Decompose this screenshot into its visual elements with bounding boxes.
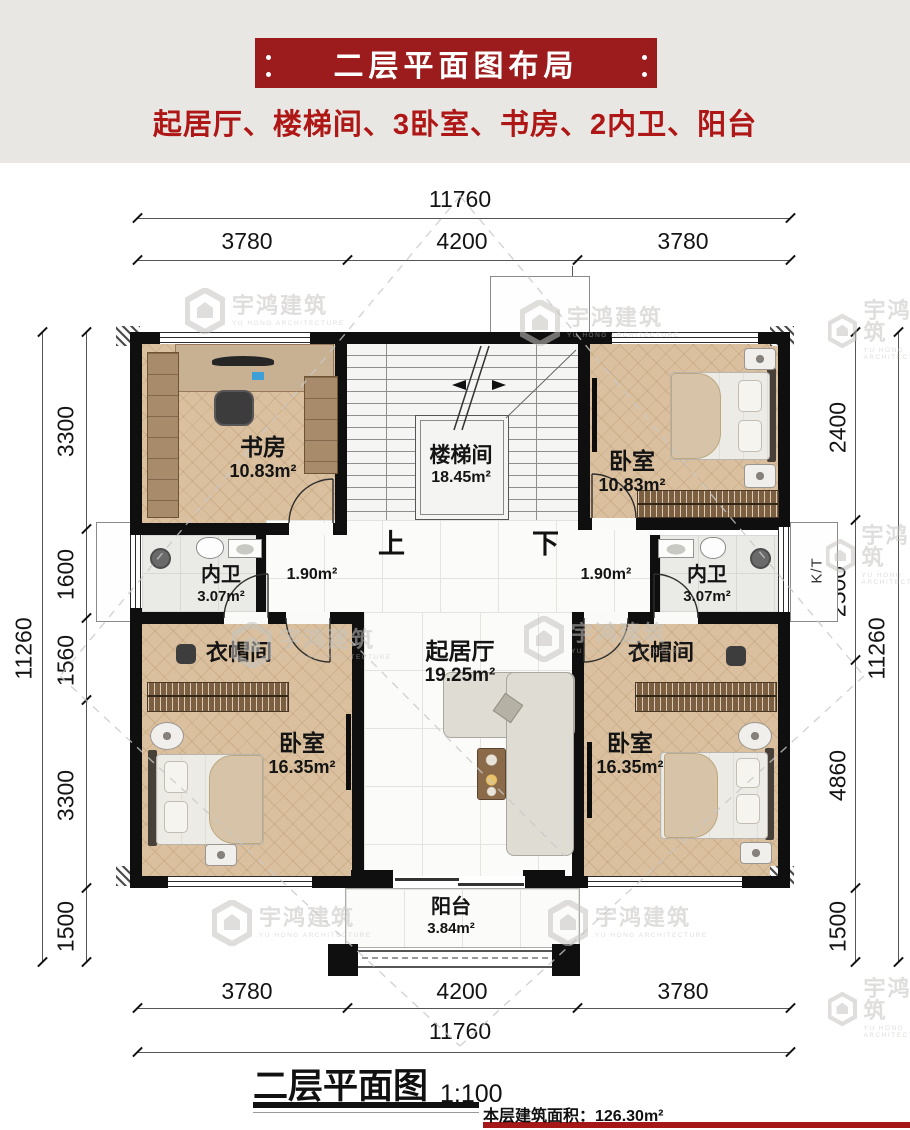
dim-line <box>137 1008 790 1009</box>
nightstand <box>150 722 184 750</box>
bedroom-br-label: 卧室16.35m² <box>575 730 685 778</box>
dim-right-seg: 2400 <box>825 383 852 473</box>
nightstand <box>744 348 776 370</box>
watermark: 宇鸿建筑YU HONG ARCHITECTURE <box>185 288 345 334</box>
dim-top-seg1: 3780 <box>172 228 322 255</box>
balcony-rail-dashed <box>332 957 578 959</box>
stool <box>726 646 746 666</box>
balcony-pier <box>552 944 580 976</box>
stair-line <box>536 344 537 520</box>
banner-dots-left-icon <box>265 55 271 77</box>
window <box>612 332 758 344</box>
closet-rack <box>635 682 777 712</box>
bath-left-label: 内卫3.07m² <box>176 564 266 605</box>
dim-left-seg: 1600 <box>53 530 80 620</box>
window <box>160 332 310 344</box>
balcony-rail <box>332 966 578 968</box>
dim-right-total: 11260 <box>864 604 891 694</box>
dim-bottom-seg1: 3780 <box>172 978 322 1005</box>
dim-line <box>898 332 899 962</box>
dim-line <box>137 1052 790 1053</box>
nightstand <box>740 842 772 864</box>
dim-top-seg2: 4200 <box>387 228 537 255</box>
bath-right-label: 内卫3.07m² <box>662 564 752 605</box>
office-chair <box>214 390 254 426</box>
kt-label: K/T <box>809 557 826 583</box>
dim-left-total: 11260 <box>11 604 38 694</box>
pillow <box>164 801 188 833</box>
sliding-door-leaf <box>458 883 524 886</box>
nightstand <box>744 464 776 488</box>
roof-bump-tick <box>572 266 573 276</box>
closet-right-label: 衣帽间 <box>606 640 716 666</box>
caption-title: 二层平面图 <box>253 1058 428 1109</box>
sink <box>658 539 694 558</box>
hall-right-label: 1.90m² <box>566 566 646 585</box>
dim-top-total: 11760 <box>380 186 540 213</box>
balcony-label: 阳台3.84m² <box>401 896 501 937</box>
window <box>588 876 742 888</box>
dim-bottom-total: 11760 <box>380 1018 540 1045</box>
dim-right-seg: 4860 <box>825 731 852 821</box>
window <box>130 535 142 608</box>
dim-line <box>855 332 856 962</box>
desk-item <box>252 372 264 380</box>
coffee-table <box>477 748 506 800</box>
floor-area-note: 本层建筑面积：126.30m² <box>483 1102 664 1126</box>
toilet <box>196 537 224 559</box>
caption-underline-thin <box>253 1112 479 1113</box>
watermark-logo-icon <box>828 986 857 1032</box>
living-label: 起居厅19.25m² <box>400 638 520 688</box>
stairs-up-label: 上 <box>378 522 405 561</box>
watermark-logo-icon <box>212 900 252 946</box>
pillow <box>736 758 760 788</box>
banner-dots-right-icon <box>641 55 647 77</box>
floor-plan-sheet: 二层平面图布局 起居厅、楼梯间、3卧室、书房、2内卫、阳台 11760 3780… <box>0 0 910 1130</box>
dim-line <box>137 218 790 219</box>
page-subtitle: 起居厅、楼梯间、3卧室、书房、2内卫、阳台 <box>0 101 910 143</box>
watermark: 宇鸿建筑YU HONG ARCHITECTURE <box>828 978 910 1039</box>
watermark-logo-icon <box>185 288 225 334</box>
closet-rack <box>147 682 289 712</box>
sliding-door-leaf <box>395 878 459 881</box>
study-label: 书房10.83m² <box>203 434 323 482</box>
dim-line <box>137 260 790 261</box>
window <box>168 876 312 888</box>
nightstand <box>738 722 772 750</box>
balcony-pier <box>523 870 565 888</box>
wall <box>130 332 142 888</box>
wall <box>578 332 590 530</box>
hall-left-label: 1.90m² <box>272 566 352 585</box>
dim-bottom-seg2: 4200 <box>387 978 537 1005</box>
door-opening <box>224 612 268 624</box>
dim-left-seg: 3300 <box>53 751 80 841</box>
stairs-down-label: 下 <box>532 522 559 561</box>
door-opening <box>592 518 636 530</box>
window <box>778 527 790 612</box>
watermark-logo-icon <box>828 308 857 354</box>
balcony-pier <box>328 944 358 976</box>
closet-left-label: 衣帽间 <box>184 640 294 666</box>
shower-head <box>750 548 771 569</box>
sink <box>228 539 262 558</box>
roof-bump-outline <box>490 276 590 340</box>
balcony-pier <box>351 870 393 888</box>
bed-blanket <box>671 373 721 459</box>
dim-bottom-seg3: 3780 <box>608 978 758 1005</box>
stair-line <box>386 344 387 520</box>
balcony-rail <box>332 950 578 952</box>
nightstand <box>205 844 237 866</box>
door-opening <box>286 612 330 624</box>
shower-head <box>150 548 171 569</box>
bedroom-tr-label: 卧室10.83m² <box>577 448 687 496</box>
pillow <box>736 794 760 824</box>
title-banner: 二层平面图布局 <box>255 38 657 88</box>
pillow <box>738 380 762 412</box>
dim-left-seg: 1500 <box>53 882 80 972</box>
dim-line <box>42 332 43 962</box>
figure-caption: 二层平面图 1:100 <box>253 1058 503 1109</box>
door-opening <box>584 612 628 624</box>
stairs-label: 楼梯间18.45m² <box>417 444 505 488</box>
door-opening <box>654 612 698 624</box>
dim-top-seg3: 3780 <box>608 228 758 255</box>
dim-left-seg: 1560 <box>53 616 80 706</box>
dim-left-seg: 3300 <box>53 387 80 477</box>
pillow <box>164 761 188 793</box>
tv <box>592 378 597 452</box>
page-title: 二层平面图布局 <box>334 41 579 85</box>
monitor <box>212 356 274 366</box>
pillow <box>738 420 762 452</box>
door-opening <box>289 523 333 535</box>
toilet <box>700 537 726 559</box>
bookshelf <box>147 352 179 518</box>
bedroom-bl-label: 卧室16.35m² <box>247 730 357 778</box>
dim-right-seg: 1500 <box>825 882 852 972</box>
dim-line <box>86 332 87 962</box>
